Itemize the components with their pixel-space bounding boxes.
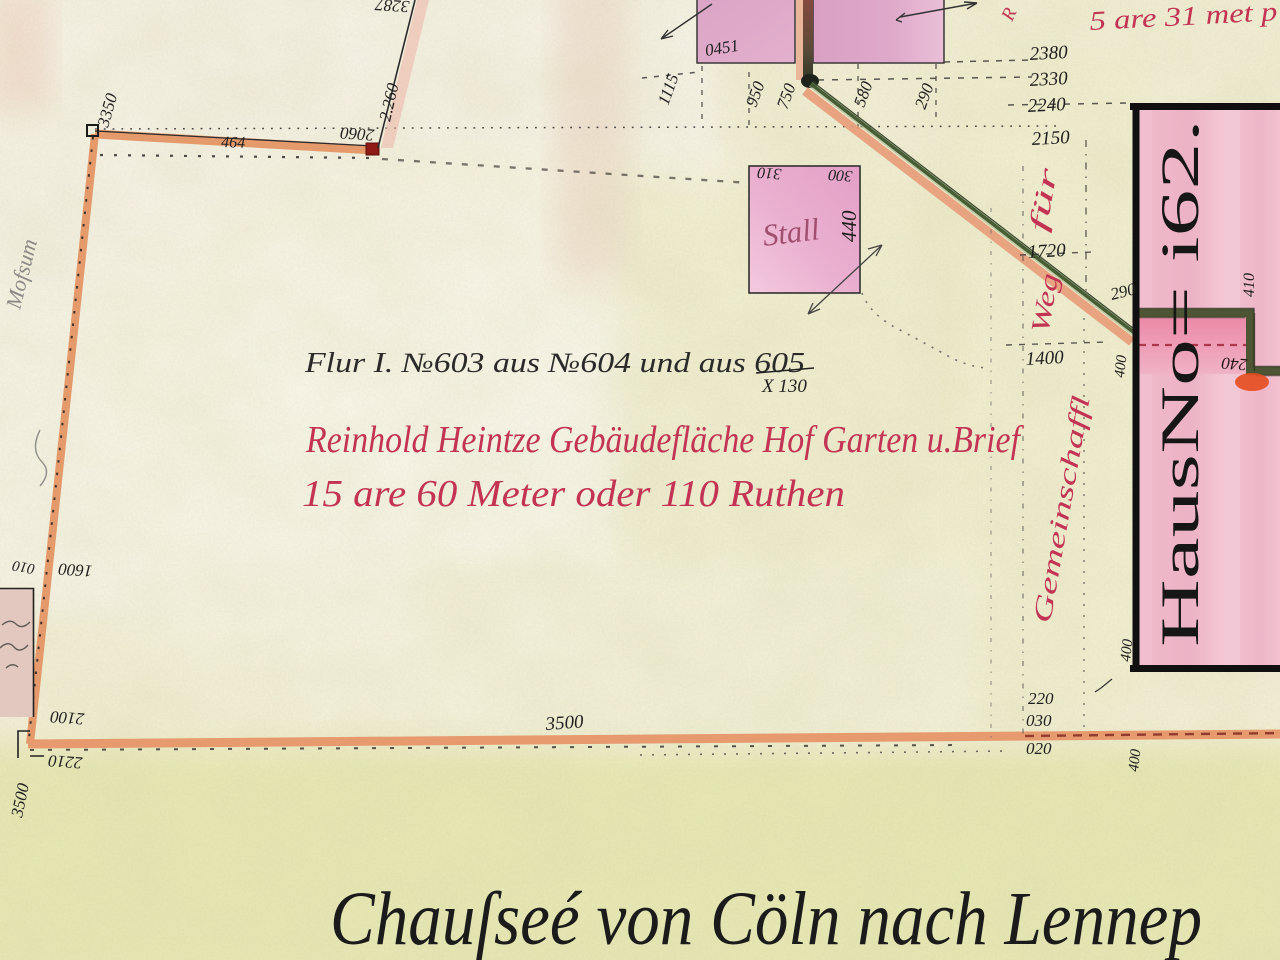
svg-text:400: 400 xyxy=(1112,354,1130,379)
svg-text:15 are 60 Meter oder 110 Ruthe: 15 are 60 Meter oder 110 Ruthen xyxy=(302,473,845,515)
svg-text:Flur I. №603 aus №604 und aus: Flur I. №603 aus №604 und aus 605 xyxy=(304,348,805,379)
svg-text:400: 400 xyxy=(1118,638,1136,663)
svg-text:2210: 2210 xyxy=(47,751,83,772)
svg-text:Chauſseé von Cöln nach Lennep: Chauſseé von Cöln nach Lennep xyxy=(330,877,1202,960)
svg-text:2150: 2150 xyxy=(1031,127,1071,150)
svg-text:240: 240 xyxy=(1220,353,1247,374)
svg-text:3500: 3500 xyxy=(544,711,585,735)
svg-text:1720: 1720 xyxy=(1027,240,1067,263)
svg-text:400: 400 xyxy=(1126,748,1144,773)
svg-text:2060: 2060 xyxy=(339,123,375,144)
svg-text:Stall: Stall xyxy=(761,211,822,253)
svg-text:1600: 1600 xyxy=(57,559,93,580)
svg-text:2330: 2330 xyxy=(1029,68,1069,91)
svg-text:310: 310 xyxy=(757,163,783,182)
svg-text:220: 220 xyxy=(1028,689,1054,708)
svg-text:3287: 3287 xyxy=(373,0,411,16)
svg-text:X 130: X 130 xyxy=(761,376,807,397)
svg-text:2380: 2380 xyxy=(1029,42,1069,65)
svg-text:030: 030 xyxy=(1026,711,1052,730)
svg-text:2240: 2240 xyxy=(1027,94,1067,117)
svg-text:Reinhold Heintze Gebäudefläche: Reinhold Heintze Gebäudefläche Hof Garte… xyxy=(305,419,1024,461)
svg-text:440: 440 xyxy=(837,210,861,242)
svg-text:2100: 2100 xyxy=(49,707,85,728)
svg-text:020: 020 xyxy=(1026,739,1052,758)
svg-text:300: 300 xyxy=(828,166,854,185)
svg-text:1400: 1400 xyxy=(1025,347,1065,370)
svg-text:464: 464 xyxy=(221,134,246,152)
svg-text:410: 410 xyxy=(1241,273,1258,297)
svg-text:HausNo= i62.: HausNo= i62. xyxy=(1150,119,1210,647)
